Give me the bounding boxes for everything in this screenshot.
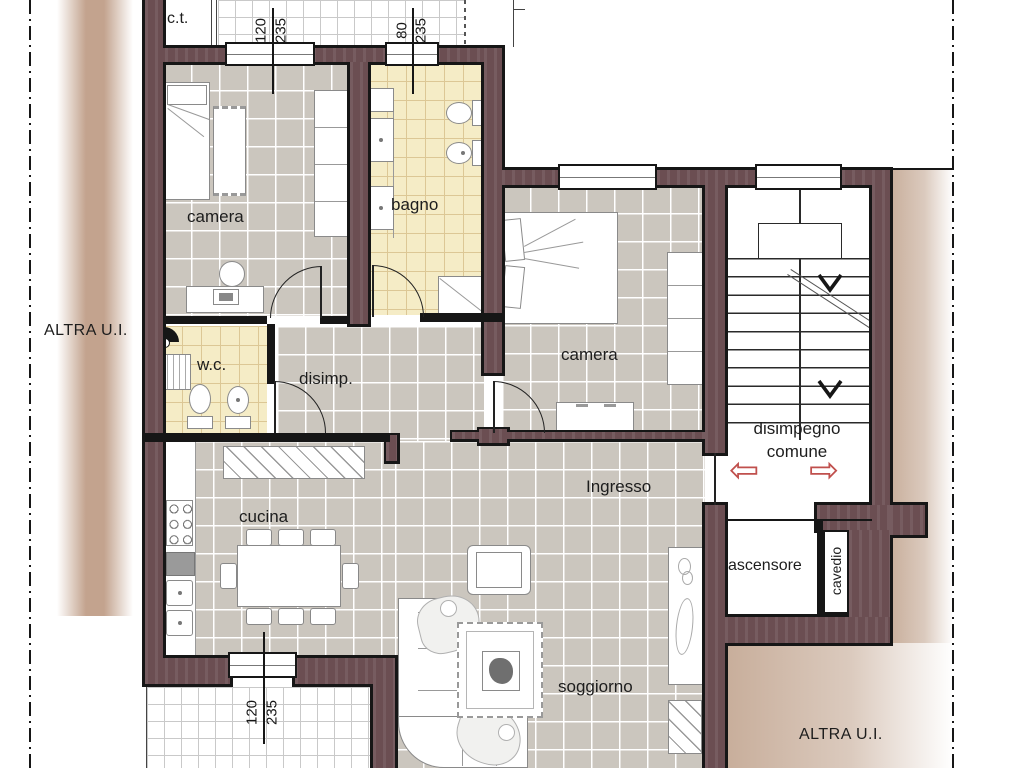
dimension-height-label: 235: [273, 13, 290, 49]
wall-segment: [373, 658, 395, 768]
wall-segment: [350, 62, 368, 324]
room-label-camera1: camera: [187, 207, 244, 227]
wall-segment: [657, 170, 712, 185]
room-label-bagno: bagno: [391, 195, 438, 215]
dimension-width-label: 120: [244, 695, 261, 731]
door-arc-camera2: [493, 381, 545, 433]
room-label-cavedio: cavedio: [828, 541, 844, 601]
partition-wall: [320, 316, 350, 324]
entry-door-leaf: [714, 453, 716, 505]
room-label-soggiorno: soggiorno: [558, 677, 633, 697]
exit-arrow-left-icon: ⇦: [729, 453, 759, 489]
room-label-ascensore: ascensore: [728, 557, 802, 575]
wall-segment: [872, 170, 890, 515]
room-label-disimp: disimp.: [299, 369, 353, 389]
wall-segment: [145, 658, 230, 684]
door-leaf-wc: [274, 381, 276, 433]
wall-segment: [890, 505, 925, 535]
partition-wall: [725, 519, 872, 521]
dimension-height-label: 235: [264, 695, 281, 731]
wall-segment: [484, 48, 502, 373]
wall-segment: [313, 48, 387, 62]
wall-segment: [817, 505, 890, 530]
room-label-wc: w.c.: [197, 355, 226, 375]
wall-segment: [502, 170, 560, 185]
dimension-width-label: 120: [253, 13, 270, 49]
door-leaf-bagno: [372, 265, 374, 317]
wall-segment: [145, 48, 227, 62]
window-120: [225, 42, 315, 66]
room-label-camera2: camera: [561, 345, 618, 365]
exit-arrow-right-icon: ⇨: [809, 453, 839, 489]
room-label-ingresso: Ingresso: [586, 477, 651, 497]
room-label-disimpegno-comune-line1: disimpegno: [722, 419, 872, 439]
property-line-top-right: [888, 168, 953, 170]
wall-segment: [145, 62, 163, 660]
partition-wall: [267, 324, 275, 384]
window-camera2: [558, 164, 657, 190]
door-arc-camera1: [270, 266, 322, 318]
window-stairwell: [755, 164, 842, 190]
wall-segment: [705, 170, 725, 453]
partition-wall: [145, 433, 390, 442]
door-arc-bagno: [372, 265, 424, 317]
room-label-ct: c.t.: [167, 10, 188, 28]
partition-wall: [420, 313, 502, 322]
other-unit-label-left: ALTRA U.I.: [44, 322, 128, 340]
wall-segment: [705, 617, 890, 643]
door-leaf-camera1: [320, 266, 322, 318]
other-unit-label-right: ALTRA U.I.: [799, 726, 883, 744]
dimension-height-label: 235: [413, 13, 430, 49]
dimension-width-label: 80: [394, 13, 411, 49]
floor-plan: ALTRA U.I. ALTRA U.I.: [0, 0, 1024, 768]
partition-wall: [163, 316, 267, 324]
room-label-cucina: cucina: [239, 507, 288, 527]
door-leaf-camera2: [493, 381, 495, 433]
